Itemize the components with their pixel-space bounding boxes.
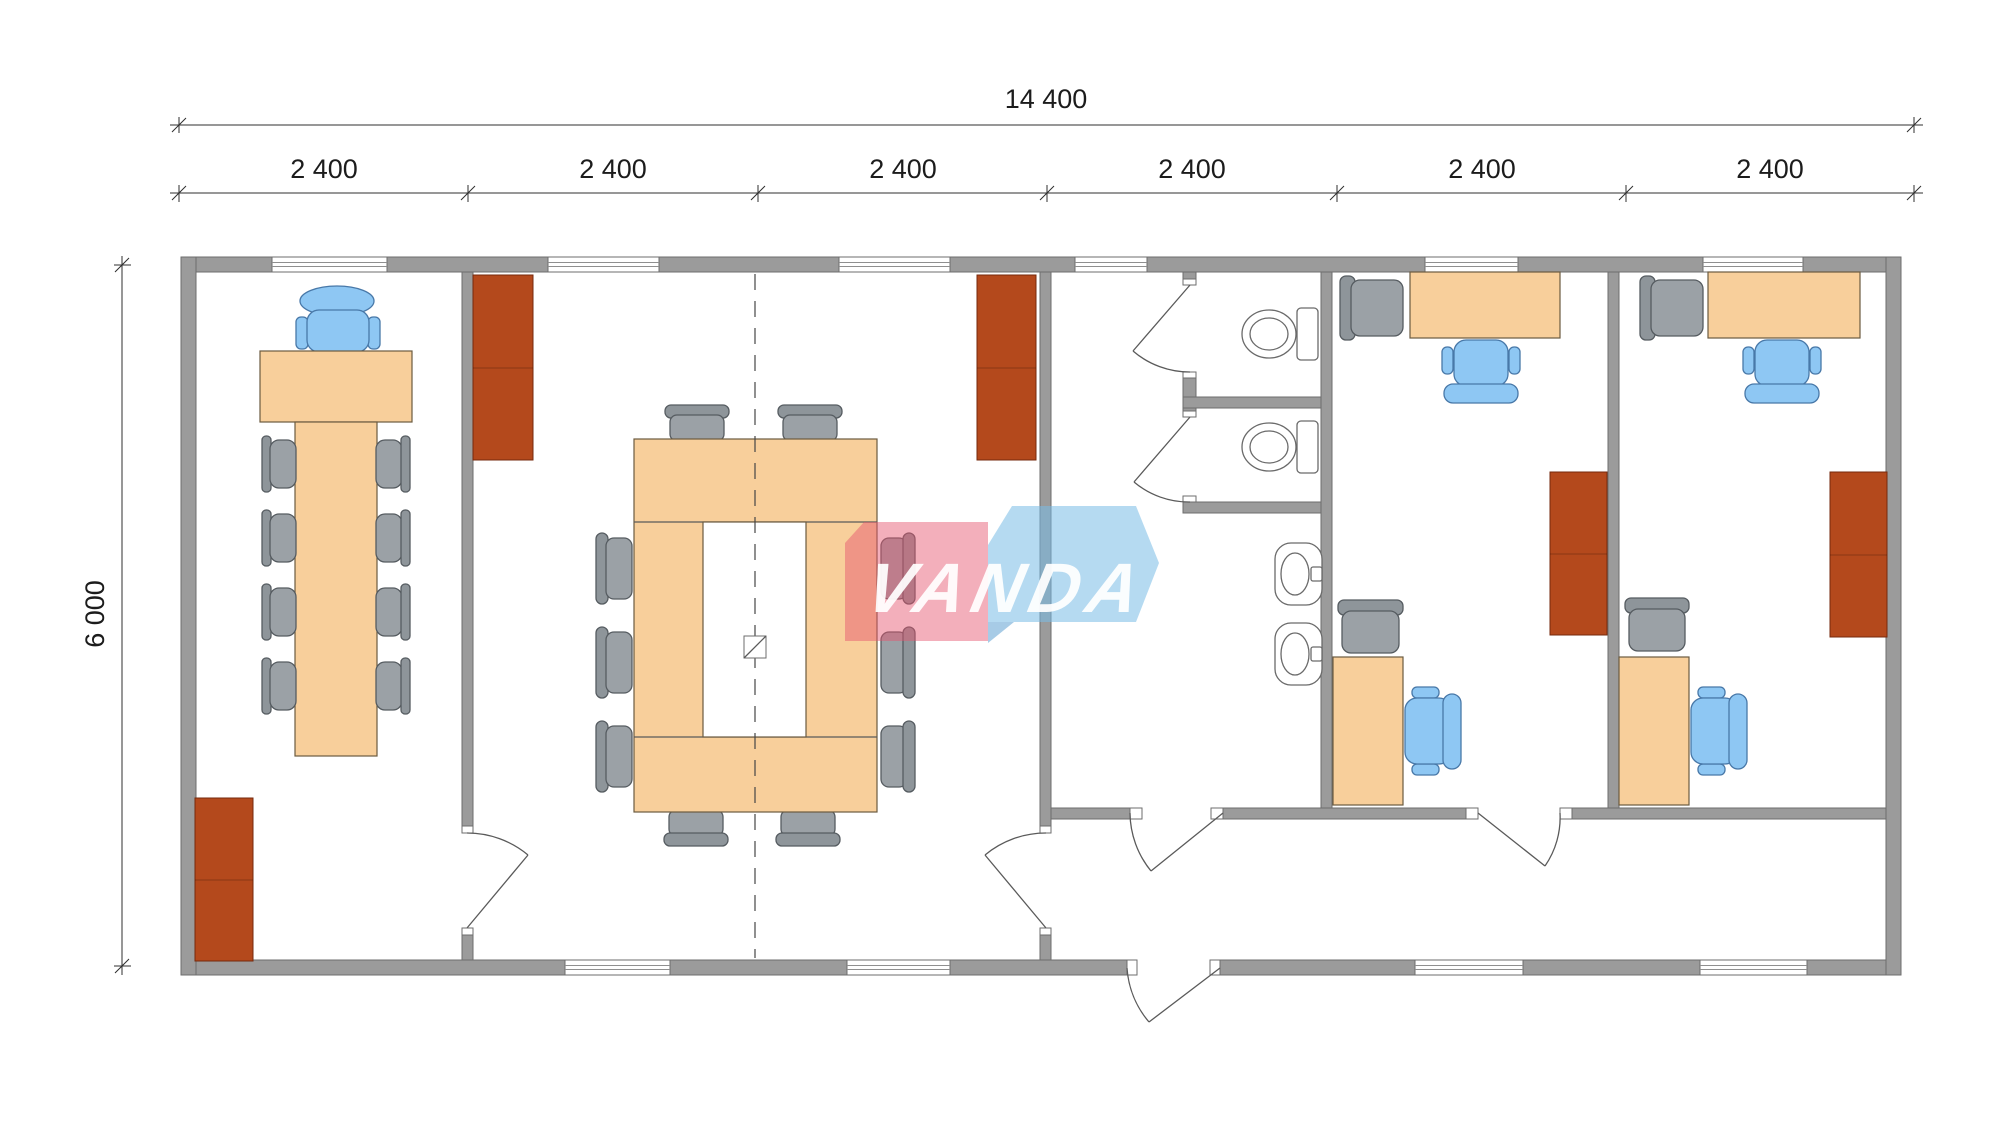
corridor-wall-segment: [1572, 808, 1886, 819]
executive-chair-seat: [307, 310, 369, 352]
side-chair: [376, 436, 410, 492]
corridor-wall-segment: [1223, 808, 1466, 819]
floor-plan-drawing: 14 400 2 400 2 400 2 400 2 400 2 400 2 4…: [0, 0, 2000, 1147]
conference-chair: [778, 405, 842, 441]
visitor-chair: [1340, 276, 1403, 340]
sanitary-block: [1242, 308, 1322, 685]
visitor-chair: [1338, 600, 1403, 653]
meeting-room: [195, 286, 412, 961]
conference-chair: [596, 721, 632, 792]
door-entrance: [1127, 968, 1220, 1022]
jamb-cap: [1183, 279, 1196, 285]
conference-chair: [664, 810, 728, 846]
jamb-cap: [462, 826, 473, 833]
conference-chair: [596, 627, 632, 698]
door-office-1: [1478, 813, 1560, 866]
window-top-3: [839, 257, 950, 272]
window-bottom-1: [565, 960, 670, 975]
desk: [1333, 657, 1403, 805]
jamb-cap: [1183, 496, 1196, 502]
task-chair: [1405, 687, 1461, 775]
wall-meeting-conference: [462, 272, 473, 833]
corridor-wall-segment: [1051, 808, 1130, 819]
exterior-wall-top: [181, 257, 1901, 272]
executive-chair-armrest: [368, 317, 380, 349]
dim-label-module-2: 2 400: [579, 154, 647, 184]
conference-chair: [881, 721, 915, 792]
door-conference-room: [985, 833, 1046, 928]
task-chair: [1691, 687, 1747, 775]
jamb-cap: [1130, 808, 1142, 819]
side-chair: [262, 510, 296, 566]
toilet: [1242, 421, 1318, 473]
jamb-cap: [1127, 960, 1137, 975]
jamb-cap: [1183, 372, 1196, 378]
jamb-cap: [1040, 826, 1051, 833]
executive-chair-armrest: [296, 317, 308, 349]
task-chair: [1442, 340, 1520, 403]
window-bottom-2: [847, 960, 950, 975]
side-chair: [262, 436, 296, 492]
office-1: [1333, 272, 1607, 805]
window-bottom-4: [1700, 960, 1807, 975]
watermark-text: VANDA: [859, 549, 1154, 627]
meeting-table-stem: [295, 422, 377, 756]
visitor-chair: [1640, 276, 1703, 340]
toilet: [1242, 308, 1318, 360]
side-chair: [376, 510, 410, 566]
jamb-cap: [1560, 808, 1572, 819]
wall-wc-east: [1321, 272, 1332, 819]
jamb-cap: [1210, 960, 1220, 975]
desk: [1708, 272, 1860, 338]
window-bottom-3: [1415, 960, 1523, 975]
door-wc-corridor: [1130, 813, 1223, 871]
office-2: [1619, 272, 1887, 805]
dim-label-module-3: 2 400: [869, 154, 937, 184]
dim-label-module-1: 2 400: [290, 154, 358, 184]
washbasin: [1275, 543, 1322, 605]
wc-partition-2: [1183, 502, 1321, 513]
window-top-2: [548, 257, 659, 272]
wc-partition-1: [1183, 397, 1321, 408]
jamb-cap: [1466, 808, 1478, 819]
conference-chair: [776, 810, 840, 846]
side-chair: [376, 584, 410, 640]
exterior-wall-right: [1886, 257, 1901, 975]
exterior-wall-left: [181, 257, 196, 975]
dim-label-module-6: 2 400: [1736, 154, 1804, 184]
window-top-6: [1703, 257, 1803, 272]
side-chair: [262, 658, 296, 714]
window-top-1: [272, 257, 387, 272]
floor-plan-page: 14 400 2 400 2 400 2 400 2 400 2 400 2 4…: [0, 0, 2000, 1147]
jamb-cap: [462, 928, 473, 935]
meeting-table-head: [260, 351, 412, 422]
dim-label-module-4: 2 400: [1158, 154, 1226, 184]
door-meeting-room: [467, 833, 528, 928]
conference-chair: [596, 533, 632, 604]
washbasin: [1275, 623, 1322, 685]
dim-label-module-5: 2 400: [1448, 154, 1516, 184]
dim-label-total-width: 14 400: [1005, 84, 1088, 114]
conference-chair: [665, 405, 729, 441]
door-wc-stall-1: [1133, 285, 1190, 372]
desk: [1619, 657, 1689, 805]
side-chair: [376, 658, 410, 714]
window-top-4: [1075, 257, 1147, 272]
jamb-cap: [1183, 411, 1196, 417]
watermark: VANDA: [845, 506, 1159, 643]
door-wc-stall-2: [1134, 417, 1190, 502]
task-chair: [1743, 340, 1821, 403]
jamb-cap: [1040, 928, 1051, 935]
wall-office-divider: [1608, 272, 1619, 819]
visitor-chair: [1625, 598, 1689, 651]
side-chair: [262, 584, 296, 640]
window-top-5: [1425, 257, 1518, 272]
dim-label-height: 6 000: [80, 580, 110, 648]
desk: [1410, 272, 1560, 338]
